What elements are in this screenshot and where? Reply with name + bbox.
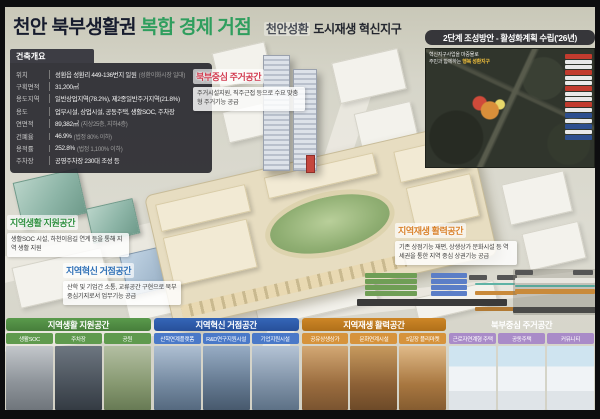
mini-label-chip (573, 270, 593, 275)
title-sub: 천안성환 도시재생 혁신지구 (264, 22, 402, 36)
photo (302, 346, 349, 410)
item-chip: 문화연계시설 (350, 333, 397, 344)
mini-teal-line (515, 285, 595, 287)
section-blue-bar (431, 285, 467, 290)
mini-section-diagram (513, 269, 595, 315)
map-caption-line2: 주민과 함께하는 행복 성환지구 (429, 59, 490, 66)
photo (154, 346, 201, 410)
legend-row (565, 130, 592, 134)
section-green-bar (365, 285, 417, 290)
section-items: 근로자연계형 주택 공동주택 커뮤니티 (449, 333, 594, 344)
title-sub-text: 도시재생 혁신지구 (313, 22, 401, 36)
section-items: 산학연계플랫폼 R&D연구지원시설 기업지원시설 (154, 333, 299, 344)
title-main: 천안 북부생활권 (13, 17, 136, 38)
item-chip: 공원 (104, 333, 151, 344)
legend-row (565, 92, 592, 96)
item-chip: 공유상생상가 (302, 333, 349, 344)
legend-red-bar (565, 54, 592, 59)
cross-section-diagram (357, 273, 519, 315)
overview-row: 용적률 252.8% (법정 1,100% 이하) (16, 142, 206, 154)
section-housing: 북부중심 주거공간 근로자연계형 주택 공동주택 커뮤니티 (449, 318, 594, 410)
overview-row: 주차장 공영주차장 230대 조성 등 (16, 155, 206, 167)
callout-life-title: 지역생활 지원공간 (7, 215, 78, 230)
poster-content: 천안 북부생활권 복합 경제 거점 천안성환 도시재생 혁신지구 건축개요 위치… (5, 7, 595, 410)
legend-blue-bar (565, 124, 592, 129)
item-chip: 산학연계플랫폼 (154, 333, 201, 344)
callout-life-body: 생활SOC 시설, 하천이음길 연계 등을 통해 지역 생활 지원 (7, 233, 129, 257)
section-items: 공유상생상가 문화연계시설 5일장 플리마켓 (302, 333, 447, 344)
mini-dark-base (513, 307, 595, 313)
photo (350, 346, 397, 410)
section-revital: 지역재생 활력공간 공유상생상가 문화연계시설 5일장 플리마켓 (302, 318, 447, 410)
mini-label-chip (515, 270, 533, 275)
section-green-bar (365, 279, 417, 284)
section-photos (6, 346, 151, 410)
legend-red-bar (565, 86, 592, 91)
title-sub-highlight: 천안성환 (264, 22, 311, 36)
section-title: 지역재생 활력공간 (302, 318, 447, 331)
section-green-bar (365, 273, 417, 278)
program-strip: 지역생활 지원공간 생활SOC 주차장 공원 지역혁신 거점공간 산학연계플랫폼… (6, 318, 594, 410)
item-chip: 생활SOC (6, 333, 53, 344)
legend-row (565, 81, 592, 85)
map-caption-line1: 혁신지구사업을 마중물로 (429, 52, 490, 59)
callout-revital-title: 지역재생 활력공간 (395, 223, 466, 238)
overview-value: 31,200㎡ (49, 82, 79, 91)
overview-value: 공영주차장 230대 조성 등 (49, 156, 119, 165)
callout-revital: 지역재생 활력공간 기존 상점기능 재편, 상생상가 문화시설 등 역세권을 통… (395, 221, 517, 265)
section-photos (302, 346, 447, 410)
overview-label: 용적률 (16, 144, 49, 153)
section-blue-bar (431, 291, 467, 296)
legend-red-bar (565, 102, 592, 107)
photo (6, 346, 53, 410)
section-title: 지역혁신 거점공간 (154, 318, 299, 331)
item-chip: 공동주택 (498, 333, 545, 344)
section-photos (154, 346, 299, 410)
map-caption-highlight: 행복 성환지구 (462, 59, 490, 65)
legend-row (565, 108, 592, 112)
item-chip: 커뮤니티 (547, 333, 594, 344)
photo (252, 346, 299, 410)
mini-orange-bar (515, 289, 595, 294)
overview-row: 구획면적 31,200㎡ (16, 80, 206, 92)
callout-innovation: 지역혁신 거점공간 산학 및 기업간 소통, 교류공간 구현으로 북부중심기지로… (63, 261, 181, 305)
item-chip: 기업지원시설 (252, 333, 299, 344)
phase2-header: 2단계 조성방안 - 활성화계획 수립('26년) (425, 30, 595, 45)
title-accent: 복합 경제 거점 (141, 17, 252, 38)
overview-row: 용도지역 일반상업지역(78.2%), 제2종일반주거지역(21.8%) (16, 93, 206, 105)
overview-note: (법정 1,100% 이하) (77, 144, 123, 153)
callout-life: 지역생활 지원공간 생활SOC 시설, 하천이음길 연계 등을 통해 지역 생활… (7, 213, 129, 257)
callout-housing-title: 북부중심 주거공간 (193, 69, 264, 84)
callout-innovation-title: 지역혁신 거점공간 (63, 263, 134, 278)
item-chip: 근로자연계형 주택 (449, 333, 496, 344)
photo (104, 346, 151, 410)
photo (498, 346, 545, 410)
section-photos (449, 346, 594, 410)
section-blue-bar (431, 273, 467, 278)
legend-blue-bar (565, 135, 592, 140)
section-orange-bar (475, 291, 517, 295)
overview-row: 건폐율 46.9% (법정 80% 이하) (16, 130, 206, 142)
overview-label: 건폐율 (16, 132, 49, 141)
overview-value: 89,382㎡ (49, 119, 79, 128)
overview-label: 위치 (16, 70, 49, 79)
map-caption: 혁신지구사업을 마중물로 주민과 함께하는 행복 성환지구 (429, 52, 490, 66)
legend-row (565, 60, 592, 64)
callout-housing-body: 주거시설지원, 직주근접 등으로 수요 맞춤형 주거기능 공급 (193, 87, 305, 111)
overview-value: 46.9% (49, 133, 72, 140)
section-title: 지역생활 지원공간 (6, 318, 151, 331)
phase2-satellite-map: 혁신지구사업을 마중물로 주민과 함께하는 행복 성환지구 (425, 48, 595, 168)
section-orange-bar (475, 307, 517, 311)
overview-value: 일반상업지역(78.2%), 제2종일반주거지역(21.8%) (49, 94, 180, 103)
photo (55, 346, 102, 410)
section-innovation: 지역혁신 거점공간 산학연계플랫폼 R&D연구지원시설 기업지원시설 (154, 318, 299, 410)
overview-label: 용도 (16, 107, 49, 116)
item-chip: R&D연구지원시설 (203, 333, 250, 344)
legend-row (565, 76, 592, 80)
legend-blue-bar (565, 113, 592, 118)
overview-label: 구획면적 (16, 82, 49, 91)
legend-row (565, 119, 592, 123)
photo (399, 346, 446, 410)
item-chip: 5일장 플리마켓 (399, 333, 446, 344)
callout-innovation-body: 산학 및 기업간 소통, 교류공간 구현으로 북부중심기지로서 업무기능 공급 (63, 281, 181, 305)
mini-white-bar (515, 278, 595, 283)
map-legend (565, 54, 592, 141)
legend-row (565, 97, 592, 101)
section-road-band (357, 299, 507, 306)
item-chip: 주차장 (55, 333, 102, 344)
photo (547, 346, 594, 410)
overview-note: (성환이화시장 일대) (139, 70, 186, 79)
overview-value: 252.8% (49, 145, 75, 152)
section-label-chip (469, 275, 487, 280)
legend-row (565, 65, 592, 69)
overview-label: 주차장 (16, 156, 49, 165)
overview-note: (법정 80% 이하) (74, 132, 112, 141)
section-items: 생활SOC 주차장 공원 (6, 333, 151, 344)
callout-revital-body: 기존 상점기능 재편, 상생상가 문화시설 등 역세권을 통한 지역 중심 상권… (395, 241, 517, 265)
red-accent-tower (306, 155, 315, 173)
overview-tab: 건축개요 (10, 49, 94, 63)
photo (203, 346, 250, 410)
overview-label: 연면적 (16, 119, 49, 128)
section-blue-bar (431, 279, 467, 284)
overview-label: 용도지역 (16, 94, 49, 103)
overview-row: 연면적 89,382㎡ (지상25층, 지하4층) (16, 118, 206, 130)
section-green-bar (365, 291, 417, 296)
photo (449, 346, 496, 410)
legend-red-bar (565, 70, 592, 75)
overview-row: 위치 성환읍 성환리 449-136번지 일원 (성환이화시장 일대) (16, 68, 206, 80)
poster-frame: 천안 북부생활권 복합 경제 거점 천안성환 도시재생 혁신지구 건축개요 위치… (0, 0, 600, 419)
page-title: 천안 북부생활권 복합 경제 거점 천안성환 도시재생 혁신지구 (13, 12, 401, 39)
section-title: 북부중심 주거공간 (449, 318, 594, 331)
overview-panel: 위치 성환읍 성환리 449-136번지 일원 (성환이화시장 일대) 구획면적… (10, 63, 212, 173)
overview-value: 성환읍 성환리 449-136번지 일원 (49, 70, 137, 79)
overview-row: 용도 업무시설, 상업시설, 공동주택, 생활SOC, 주차장 (16, 105, 206, 117)
overview-value: 업무시설, 상업시설, 공동주택, 생활SOC, 주차장 (49, 107, 175, 116)
section-life-support: 지역생활 지원공간 생활SOC 주차장 공원 (6, 318, 151, 410)
callout-housing: 북부중심 주거공간 주거시설지원, 직주근접 등으로 수요 맞춤형 주거기능 공… (193, 67, 305, 111)
overview-note: (지상25층, 지하4층) (81, 119, 128, 128)
section-teal-line (475, 283, 515, 285)
